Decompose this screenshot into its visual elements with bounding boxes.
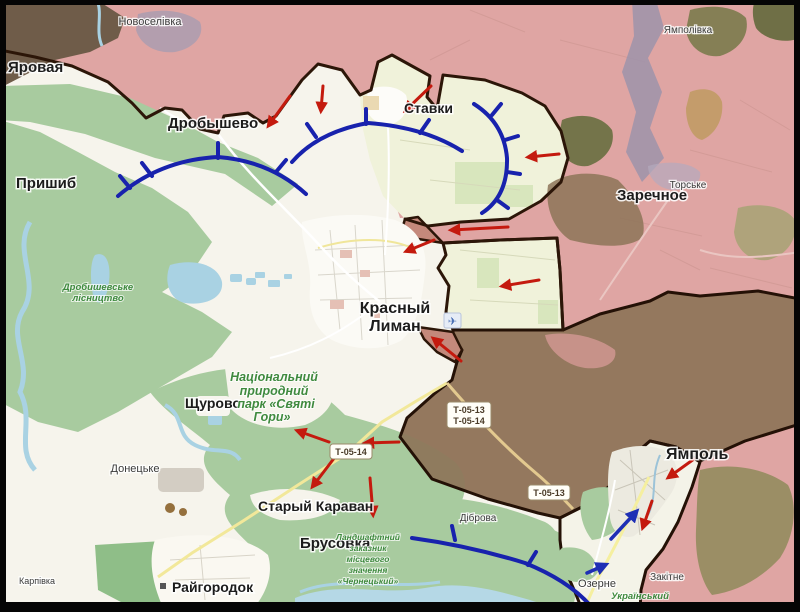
label-reserve-2: заказник	[349, 543, 387, 553]
label-reserve-4: значення	[349, 565, 388, 575]
label-park-2: природний	[240, 384, 309, 398]
pond	[230, 274, 242, 282]
label-steppe-1: Український	[611, 591, 669, 602]
pond	[246, 278, 256, 285]
label-yampol: Ямполь	[666, 446, 729, 463]
pond	[268, 280, 280, 287]
label-stavki: Ставки	[404, 100, 453, 116]
svg-text:✈: ✈	[448, 316, 457, 328]
war-map-screenshot: Т-05-13 Т-05-14 Т-05-14 Т-05-13 ✈ Новосе…	[0, 0, 800, 612]
label-dibrova: Діброва	[460, 512, 497, 524]
label-park-3: парк «Святі	[237, 397, 315, 411]
label-shchurovo: Щурово	[185, 395, 241, 411]
attack-arrow	[321, 86, 323, 110]
pond	[255, 272, 265, 278]
label-krasny-liman-1: Красный	[360, 300, 431, 317]
label-park-1: Національний	[230, 370, 318, 384]
label-ozerne: Озерне	[578, 578, 616, 590]
raigorodok-urban	[152, 535, 270, 612]
airport-icon: ✈	[444, 313, 461, 328]
situation-map: Т-05-13 Т-05-14 Т-05-14 Т-05-13 ✈ Новосе…	[0, 0, 800, 612]
label-prishib: Пришиб	[16, 175, 76, 192]
pond	[208, 415, 222, 425]
label-reserve-5: «Чернецький»	[338, 576, 399, 586]
label-zakitne: Закітне	[650, 572, 684, 583]
label-forestry-1: Дробишевське	[62, 282, 134, 293]
label-novoselivka: Новоселівка	[118, 16, 182, 28]
label-park-4: Гори»	[254, 410, 291, 424]
attack-arrow	[366, 442, 399, 443]
shield-label: Т-05-13	[453, 405, 485, 415]
shield-label: Т-05-14	[335, 447, 367, 457]
label-raigorodok: Райгородок	[172, 579, 254, 595]
label-reserve-3: місцевого	[347, 554, 390, 564]
road-shield-t0513: Т-05-13	[528, 485, 570, 500]
label-yarovaya: Яровая	[8, 59, 63, 76]
shield-label: Т-05-14	[453, 416, 485, 426]
label-yampolivka: Ямполівка	[664, 25, 713, 36]
label-donetske: Донецьке	[111, 463, 160, 475]
label-torske: Торське	[670, 180, 707, 191]
pond	[284, 274, 292, 279]
raigorodok-marker	[160, 583, 166, 589]
label-karpivka: Карпівка	[19, 576, 55, 586]
label-stary-karavan: Старый Караван	[258, 498, 373, 514]
label-drobyshevo: Дробышево	[168, 115, 258, 132]
label-reserve-1: Ландшафтний	[335, 532, 401, 542]
road-shield-double: Т-05-13 Т-05-14	[447, 402, 491, 428]
donetske-urban	[158, 468, 204, 492]
road-shield-t0514: Т-05-14	[330, 444, 372, 459]
shield-label: Т-05-13	[533, 488, 565, 498]
label-krasny-liman-2: Лиман	[369, 318, 420, 335]
label-forestry-2: лісництво	[71, 293, 123, 304]
